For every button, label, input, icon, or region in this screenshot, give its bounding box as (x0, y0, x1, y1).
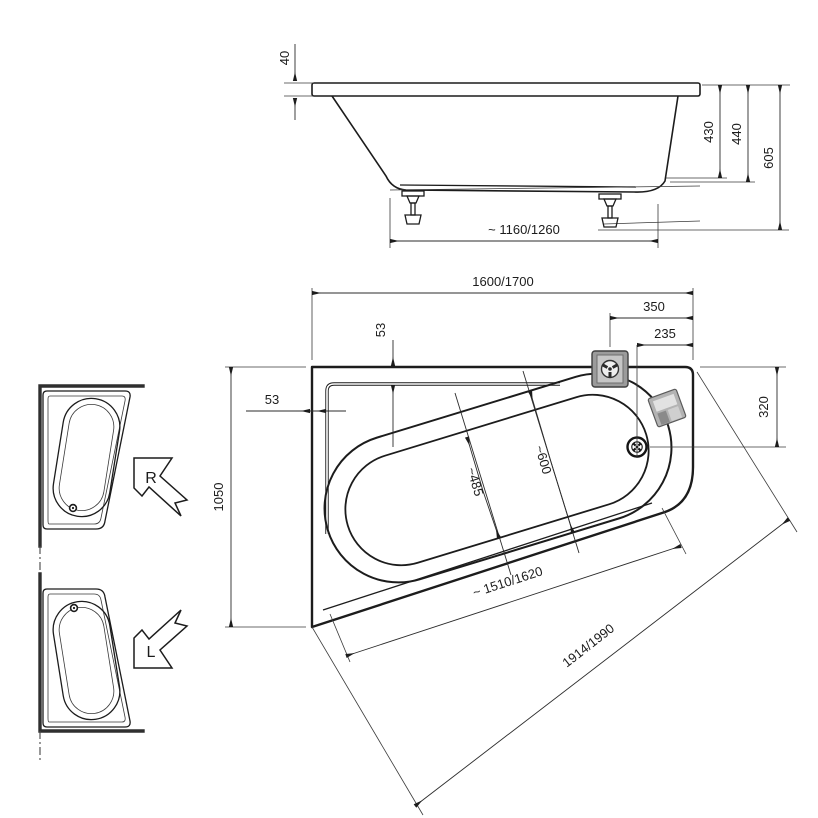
dim-label-rim-width-left: 53 (265, 392, 279, 407)
dim-rim-width-left: 53 (246, 392, 346, 411)
dim-label-rim-width-top: 53 (373, 323, 388, 337)
side-body (332, 96, 678, 192)
variant-arrow-right-icon: R (134, 458, 187, 516)
faucet-icon (592, 351, 628, 387)
side-inner-bottom (400, 185, 636, 187)
dim-label-overall-width: 1050 (211, 483, 226, 512)
dim-front-edge-overall: 1914/1990 (312, 372, 797, 815)
dim-label-well-width: ~485 (464, 465, 487, 497)
dim-feet-spacing: ~ 1160/1260 (390, 198, 658, 248)
variant-left: L (40, 574, 187, 760)
dim-label-feet-spacing: ~ 1160/1260 (488, 222, 560, 237)
dim-rim-thickness: 40 (277, 44, 314, 120)
dim-faucet-offset: 350 (610, 299, 693, 347)
dim-overall-length: 1600/1700 (312, 274, 693, 360)
plan-well-oval (331, 381, 662, 579)
side-rim (312, 83, 700, 96)
dim-label-opening-width: ~600 (532, 443, 555, 475)
foot-left-icon (402, 191, 424, 224)
dim-label-depth-inner: 430 (701, 121, 716, 143)
bathtub-dimension-drawing: 40 430 440 605 ~ 1160/1260 (0, 0, 818, 818)
foot-right-icon (599, 194, 621, 227)
variant-right: R (40, 386, 187, 574)
overflow-icon (648, 389, 686, 427)
variant-left-tub-icon (43, 589, 130, 727)
dim-heights: 430 440 605 (598, 85, 790, 230)
dim-label-shell-height: 440 (729, 123, 744, 145)
dim-label-drain-offset: 235 (654, 326, 676, 341)
variant-left-label: L (147, 644, 156, 661)
side-elevation-view: 40 430 440 605 ~ 1160/1260 (277, 44, 790, 248)
dim-label-front-edge-overall: 1914/1990 (559, 621, 617, 671)
plan-inner-rim (327, 384, 560, 534)
dim-label-faucet-offset: 350 (643, 299, 665, 314)
drawing-svg: 40 430 440 605 ~ 1160/1260 (0, 0, 818, 818)
dim-overall-width: 1050 (211, 367, 306, 627)
variant-arrow-left-icon: L (134, 610, 187, 668)
dim-label-rim-thickness: 40 (277, 51, 292, 65)
side-support-rail-2 (604, 221, 700, 224)
plan-opening-oval (306, 355, 690, 601)
plan-view: 1600/1700 350 235 53 53 (211, 274, 797, 815)
dim-label-overall-length: 1600/1700 (472, 274, 533, 289)
dim-label-right-edge: 320 (756, 396, 771, 418)
dim-label-total-height: 605 (761, 147, 776, 169)
variant-right-tub-icon (43, 391, 130, 529)
variant-right-label: R (145, 470, 157, 487)
